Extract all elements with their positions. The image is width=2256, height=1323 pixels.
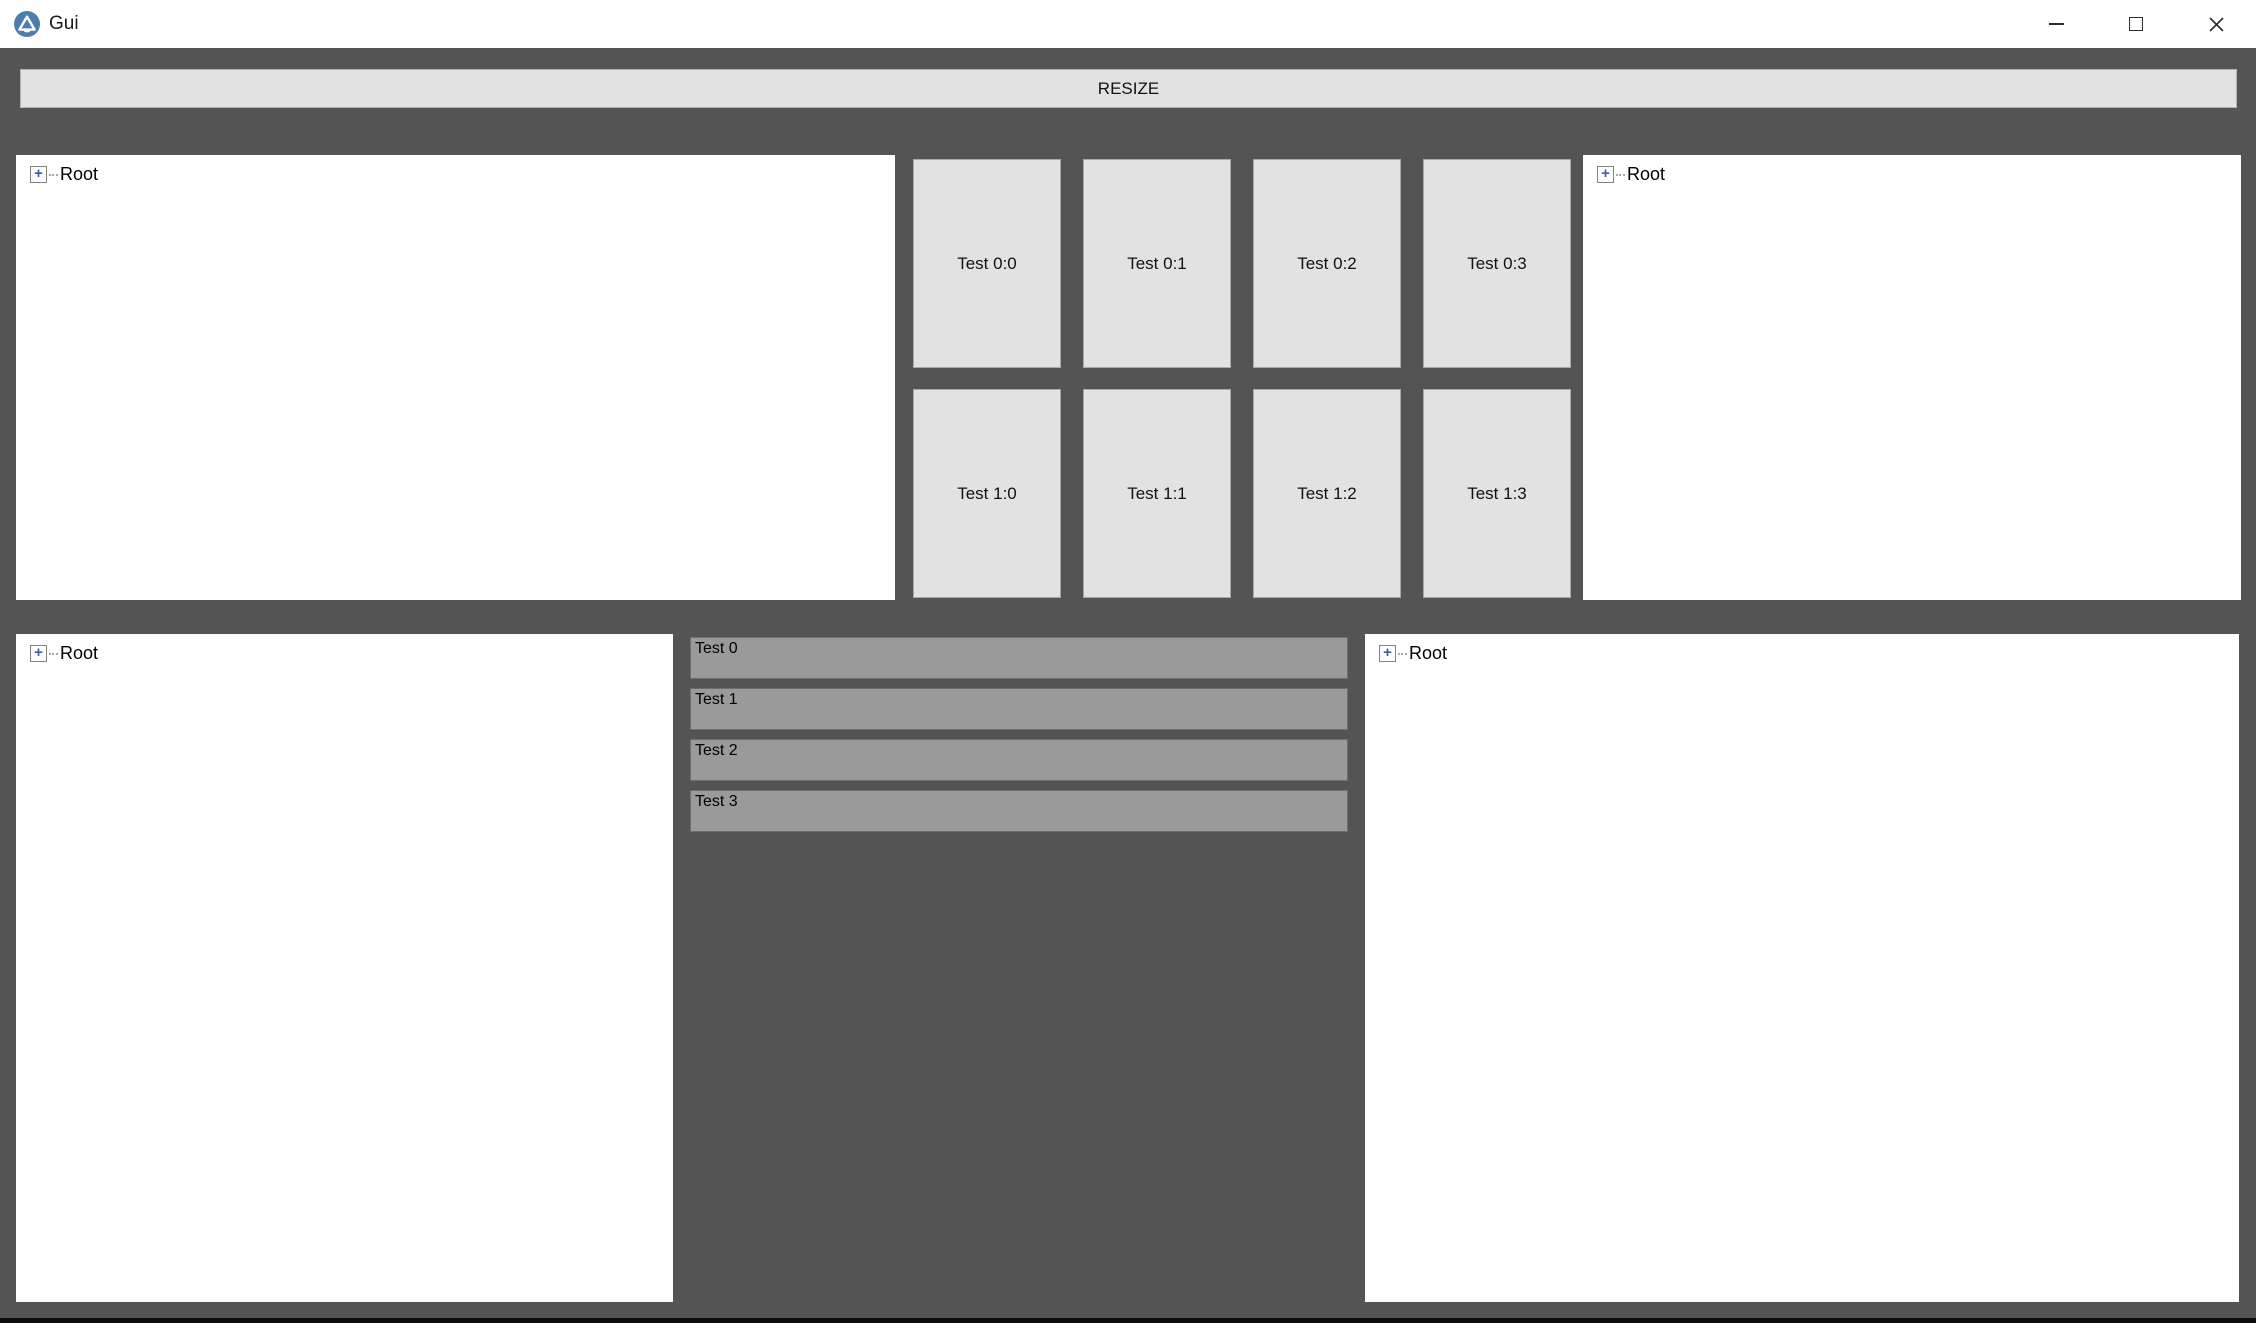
close-button[interactable]: [2176, 0, 2256, 48]
minimize-icon: [2049, 23, 2064, 25]
tree-connector-line: [1616, 174, 1625, 176]
list-item[interactable]: Test 1: [690, 688, 1348, 730]
test-grid-button[interactable]: Test 0:0: [913, 159, 1061, 368]
tree-root-label[interactable]: Root: [1627, 164, 1665, 185]
tree-root-label[interactable]: Root: [1409, 643, 1447, 664]
tree-panel-top-left: + Root: [16, 155, 895, 600]
test-grid-button[interactable]: Test 0:3: [1423, 159, 1571, 368]
tree-expand-icon[interactable]: +: [1597, 166, 1614, 183]
tree-expand-icon[interactable]: +: [1379, 645, 1396, 662]
minimize-button[interactable]: [2016, 0, 2096, 48]
test-grid-button[interactable]: Test 1:3: [1423, 389, 1571, 598]
tree-node-root[interactable]: + Root: [16, 634, 673, 664]
window-bottom-edge: [0, 1318, 2256, 1323]
tree-node-root[interactable]: + Root: [1583, 155, 2241, 185]
tree-panel-top-right: + Root: [1583, 155, 2241, 600]
list-item[interactable]: Test 2: [690, 739, 1348, 781]
tree-connector-line: [49, 174, 58, 176]
maximize-button[interactable]: [2096, 0, 2176, 48]
test-grid-button[interactable]: Test 0:1: [1083, 159, 1231, 368]
tree-panel-bottom-left: + Root: [16, 634, 673, 1302]
resize-button[interactable]: RESIZE: [20, 69, 2237, 108]
close-icon: [2208, 16, 2225, 33]
tree-root-label[interactable]: Root: [60, 164, 98, 185]
tree-expand-icon[interactable]: +: [30, 166, 47, 183]
tree-node-root[interactable]: + Root: [16, 155, 895, 185]
list-item[interactable]: Test 0: [690, 637, 1348, 679]
tree-panel-bottom-right: + Root: [1365, 634, 2239, 1302]
list-item[interactable]: Test 3: [690, 790, 1348, 832]
test-button-grid: Test 0:0 Test 0:1 Test 0:2 Test 0:3 Test…: [913, 159, 1571, 598]
test-grid-button[interactable]: Test 1:0: [913, 389, 1061, 598]
test-grid-button[interactable]: Test 1:2: [1253, 389, 1401, 598]
app-logo-icon: [14, 11, 40, 37]
maximize-icon: [2129, 17, 2143, 31]
tree-root-label[interactable]: Root: [60, 643, 98, 664]
tree-node-root[interactable]: + Root: [1365, 634, 2239, 664]
test-list: Test 0 Test 1 Test 2 Test 3: [690, 637, 1348, 841]
tree-connector-line: [49, 653, 58, 655]
test-grid-button[interactable]: Test 1:1: [1083, 389, 1231, 598]
titlebar: Gui: [0, 0, 2256, 48]
window-title: Gui: [49, 13, 79, 35]
tree-expand-icon[interactable]: +: [30, 645, 47, 662]
test-grid-button[interactable]: Test 0:2: [1253, 159, 1401, 368]
tree-connector-line: [1398, 653, 1407, 655]
caption-buttons: [2016, 0, 2256, 48]
